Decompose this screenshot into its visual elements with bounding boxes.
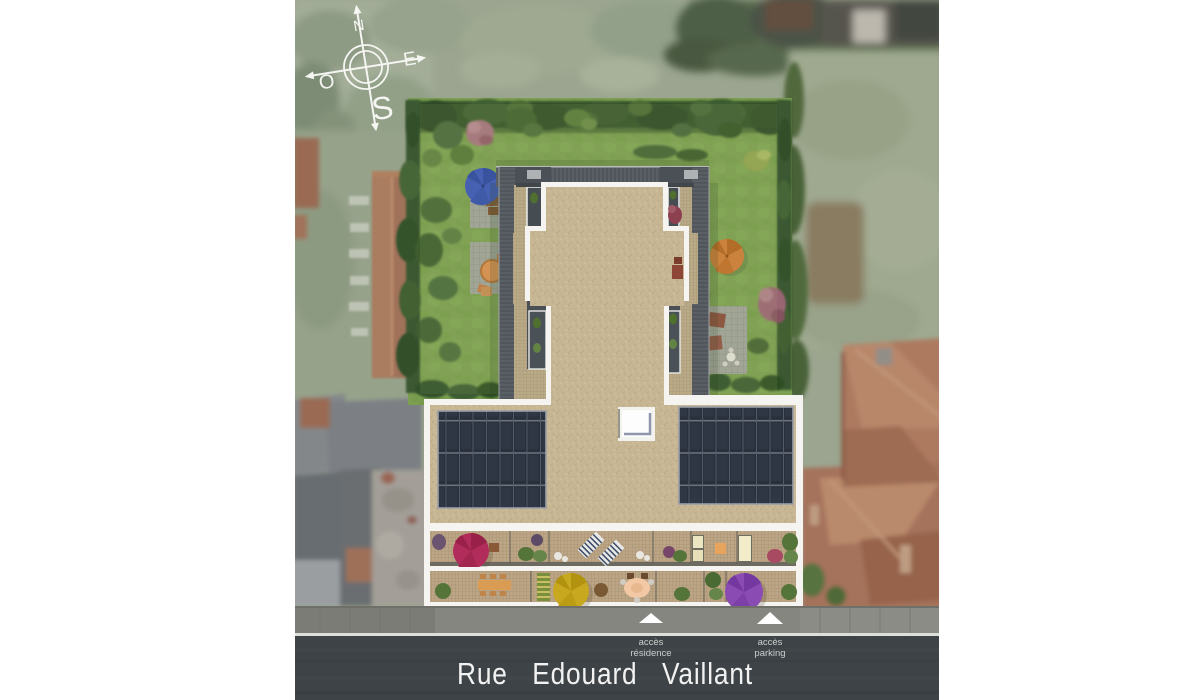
svg-text:Rue Edouard Vaillant: Rue Edouard Vaillant xyxy=(457,656,753,691)
svg-text:parking: parking xyxy=(754,648,785,659)
svg-text:accès: accès xyxy=(639,637,664,648)
svg-text:accès: accès xyxy=(758,637,783,648)
